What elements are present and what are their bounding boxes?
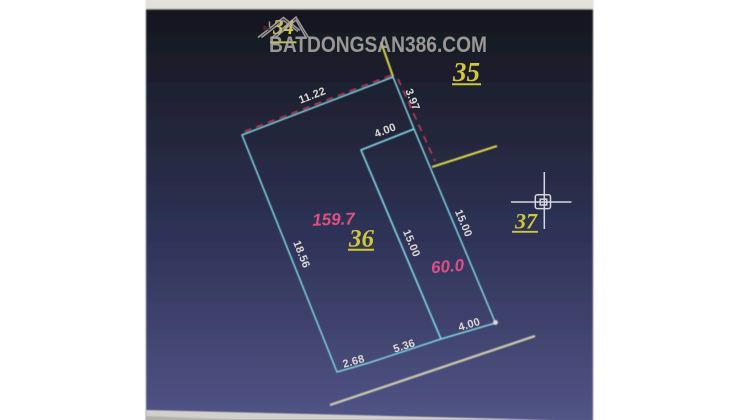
svg-text:BATDONGSAN386.COM: BATDONGSAN386.COM [269, 32, 487, 57]
svg-text:35: 35 [452, 57, 480, 87]
svg-text:159.7: 159.7 [312, 209, 357, 230]
svg-text:36: 36 [348, 226, 375, 253]
svg-text:60.0: 60.0 [430, 256, 465, 278]
svg-text:37: 37 [514, 209, 538, 234]
